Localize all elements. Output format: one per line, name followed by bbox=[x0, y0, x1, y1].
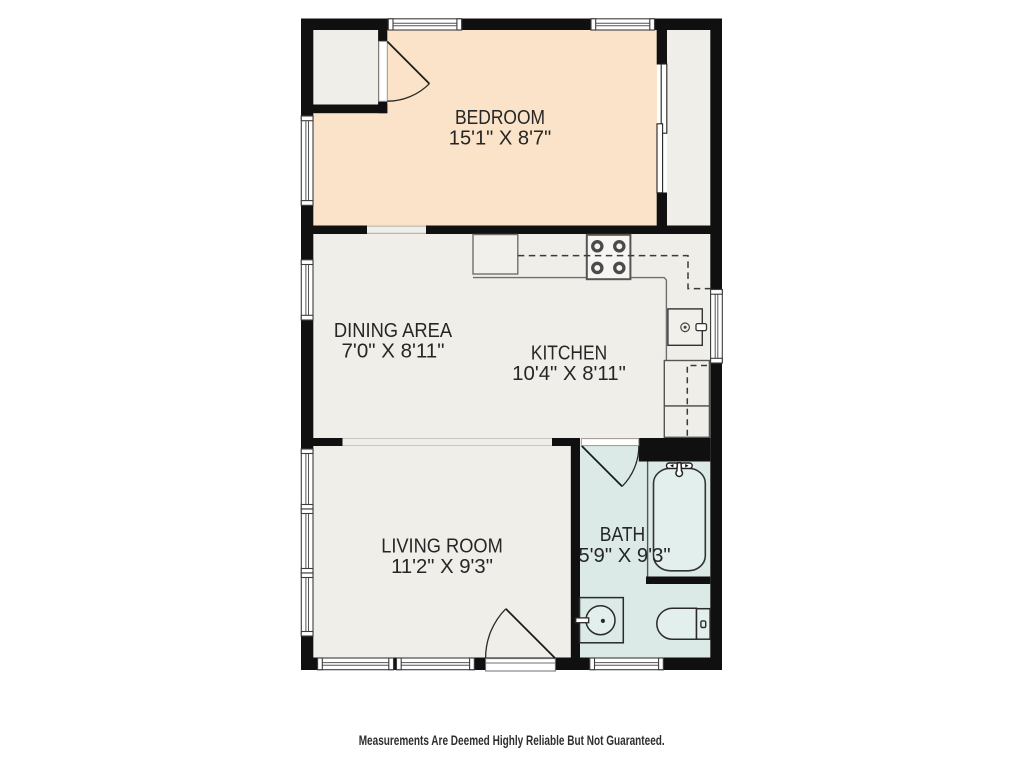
svg-text:15'1" X 8'7": 15'1" X 8'7" bbox=[449, 128, 552, 150]
svg-text:BEDROOM: BEDROOM bbox=[455, 107, 545, 129]
svg-text:LIVING ROOM: LIVING ROOM bbox=[381, 536, 503, 558]
svg-text:11'2" X 9'3": 11'2" X 9'3" bbox=[391, 556, 493, 578]
svg-text:7'0" X 8'11": 7'0" X 8'11" bbox=[342, 341, 445, 363]
svg-text:10'4" X 8'11": 10'4" X 8'11" bbox=[512, 363, 626, 385]
svg-text:BATH: BATH bbox=[600, 524, 645, 546]
svg-text:Measurements Are Deemed Highly: Measurements Are Deemed Highly Reliable … bbox=[359, 733, 665, 748]
svg-text:DINING AREA: DINING AREA bbox=[334, 320, 453, 342]
svg-text:KITCHEN: KITCHEN bbox=[531, 343, 607, 365]
svg-text:5'9" X 9'3": 5'9" X 9'3" bbox=[578, 545, 670, 567]
